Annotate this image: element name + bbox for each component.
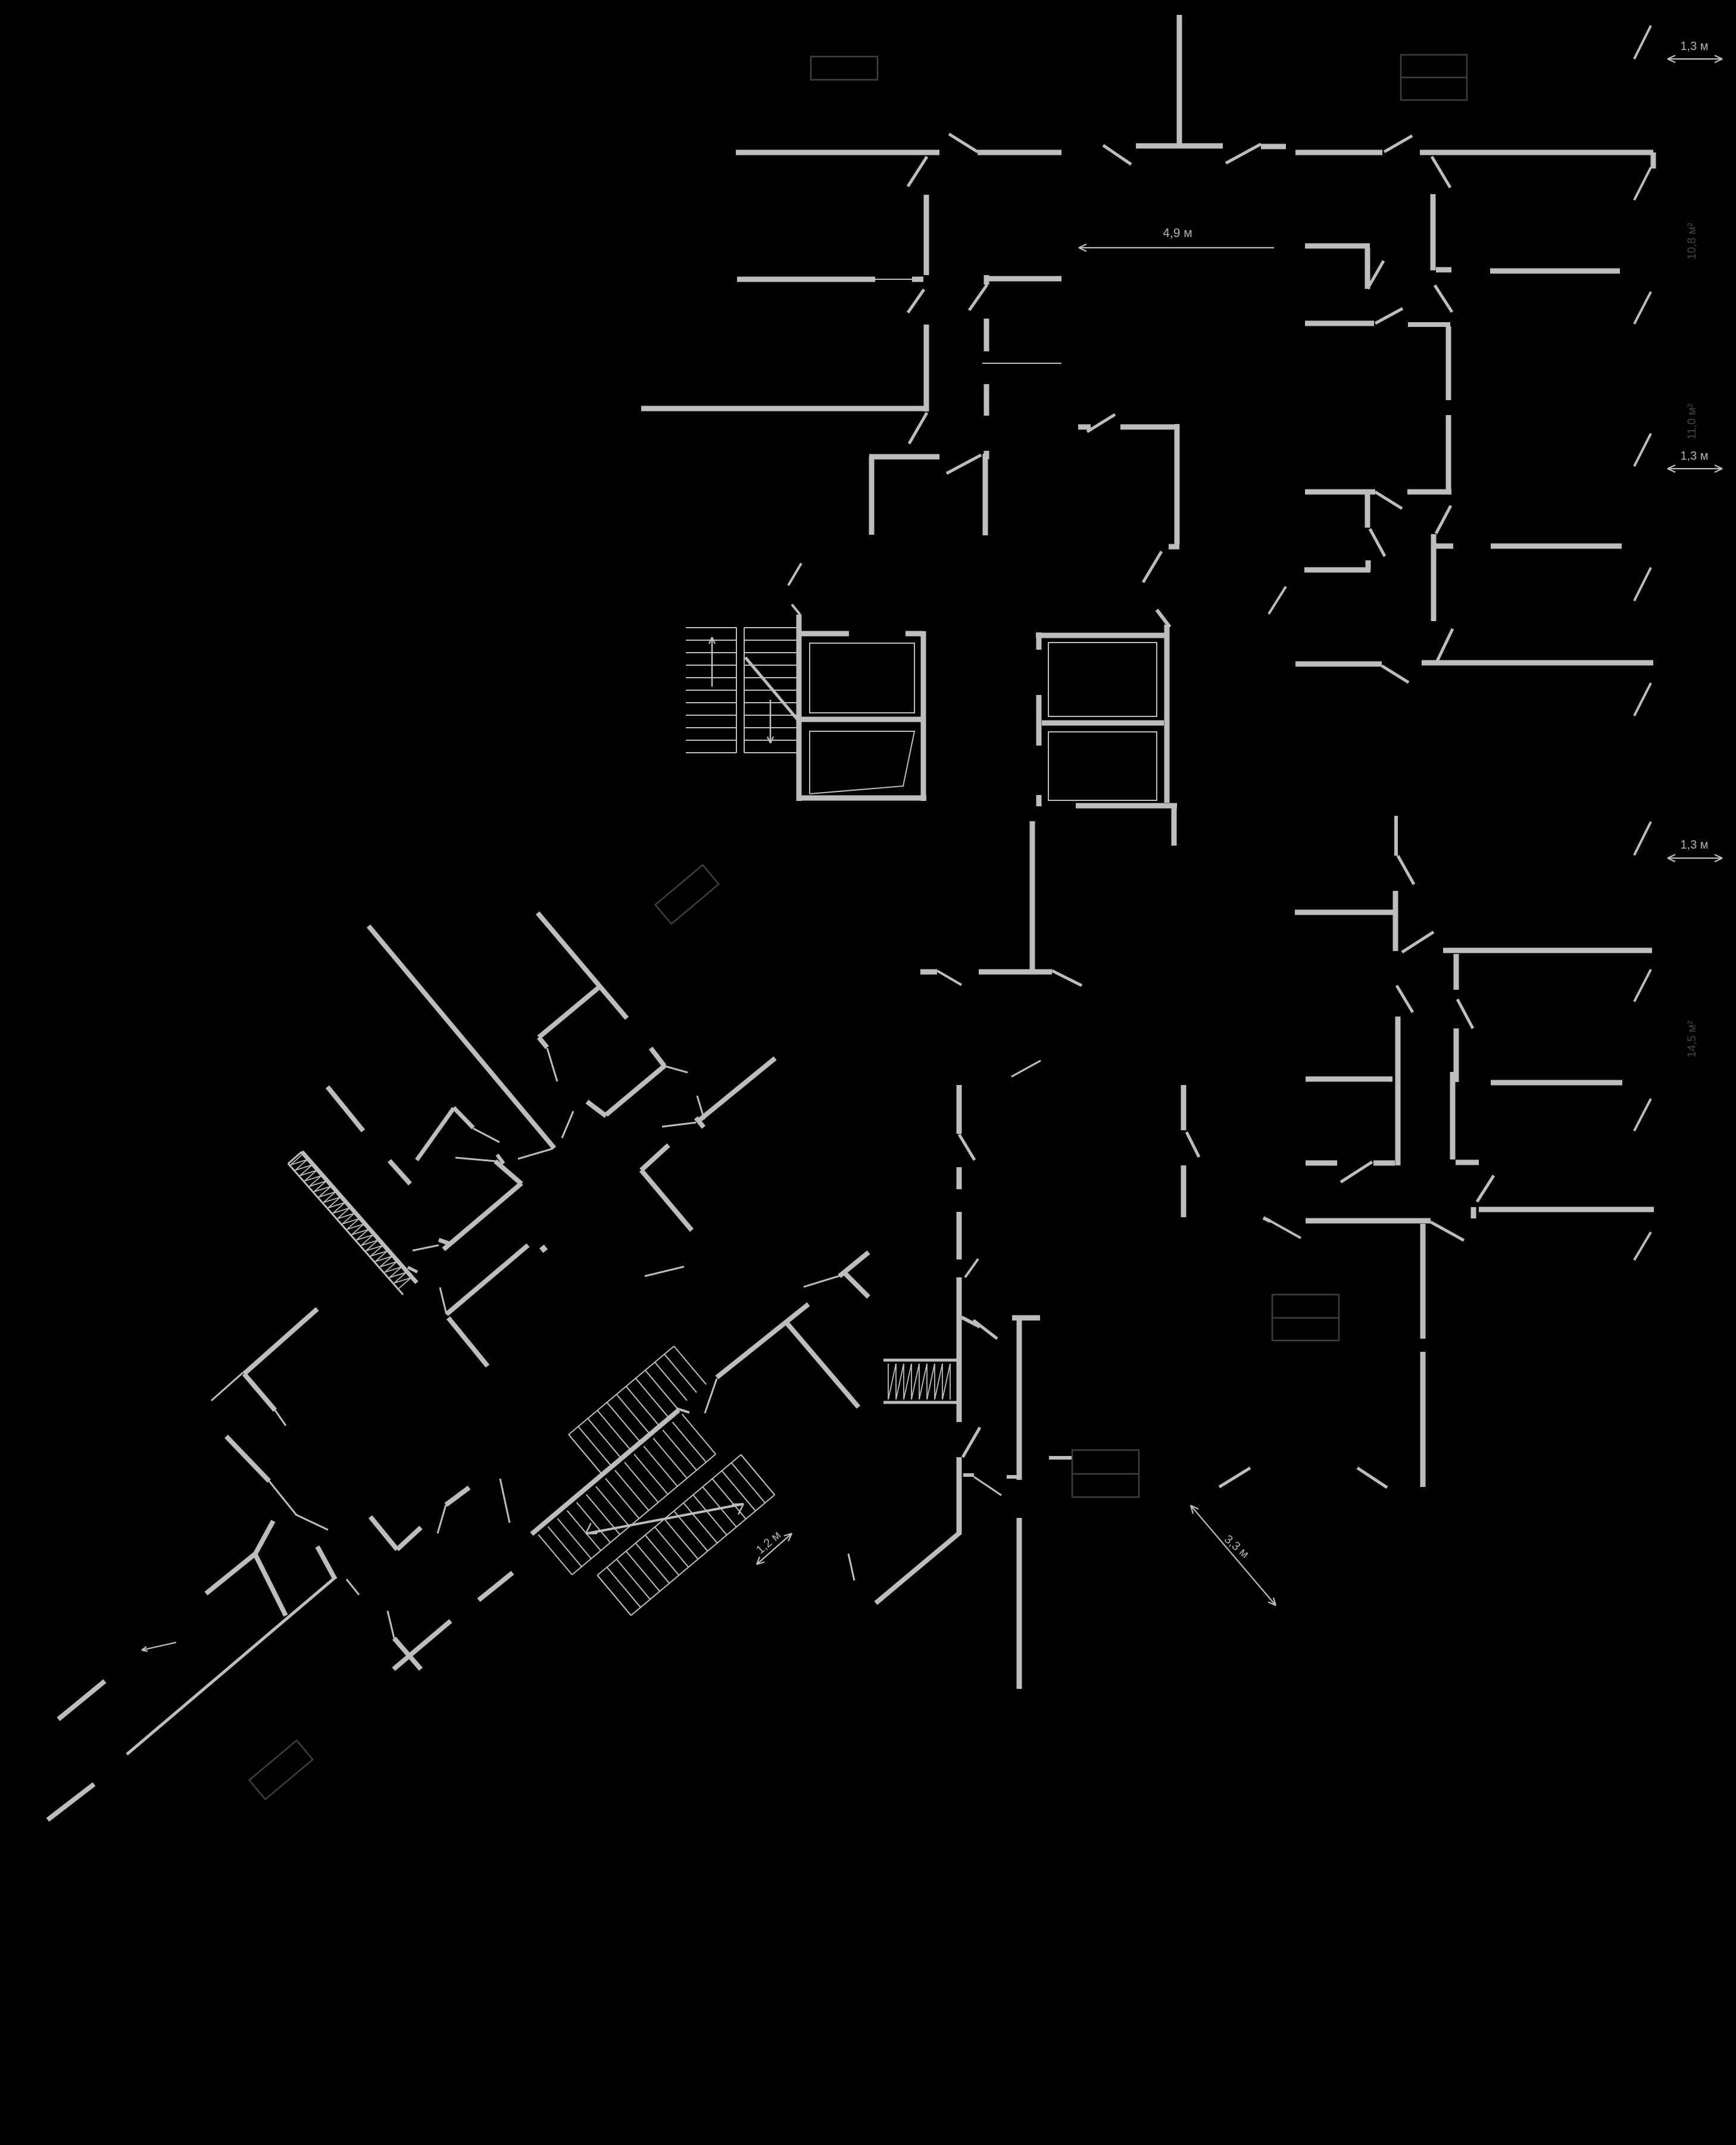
- svg-text:1,3 м: 1,3 м: [1680, 450, 1708, 463]
- svg-text:1,3 м: 1,3 м: [1680, 838, 1708, 852]
- svg-text:14,5 м²: 14,5 м²: [1686, 1021, 1698, 1058]
- svg-text:4,9 м: 4,9 м: [1163, 226, 1192, 240]
- svg-text:11,0 м²: 11,0 м²: [1686, 404, 1698, 439]
- svg-text:1,3 м: 1,3 м: [1680, 40, 1708, 53]
- svg-text:10,8 м²: 10,8 м²: [1686, 223, 1698, 260]
